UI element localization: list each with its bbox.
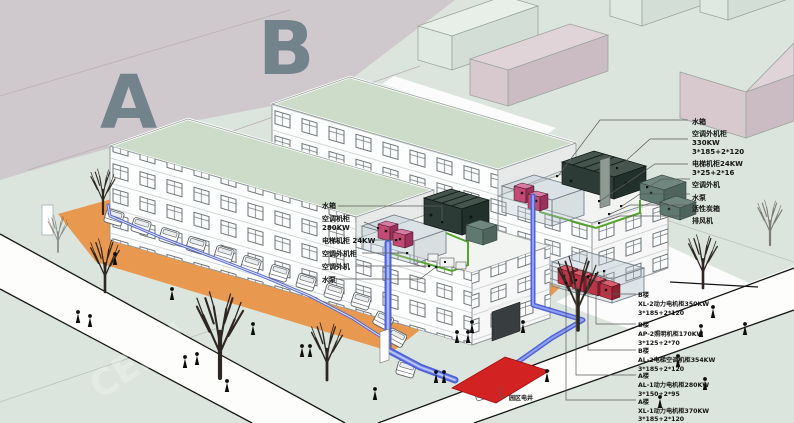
- label-exhaust-fan-b: 排风机: [692, 216, 713, 225]
- cabinet-4-building: A楼: [638, 398, 650, 406]
- entrance-pylon: [42, 205, 53, 235]
- cabinet-1-name: AP-2照明机柜170KW: [638, 330, 704, 338]
- label-ac-outdoor-cabinet-b-power: 330KW: [692, 139, 720, 147]
- label-water-pump-a: 水泵: [322, 275, 336, 284]
- cabinet-2-spec: 3*185+2*120: [638, 366, 685, 373]
- label-ac-outdoor-cabinet-b-spec: 3*185+2*120: [692, 148, 744, 156]
- site-svg: CEIDI: [0, 0, 794, 423]
- label-utility-well: 园区电井: [509, 394, 533, 402]
- building-a-letter: A: [100, 60, 157, 146]
- cabinet-1-spec: 3*125+2*70: [638, 340, 680, 347]
- label-water-pump-b: 水泵: [692, 193, 706, 202]
- cabinet-1-building: B楼: [638, 321, 650, 329]
- label-ac-cabinet-a: 空调机柜: [322, 214, 350, 223]
- gate-panel: [380, 329, 389, 363]
- cabinet-3-building: A楼: [638, 372, 650, 380]
- label-water-tank-a: 水箱: [322, 201, 336, 210]
- cabinet-2-name: AL-2电梯空调机柜354KW: [638, 356, 715, 364]
- label-carbon-box-b: 活性炭箱: [692, 204, 720, 213]
- cabinet-3-spec: 3*150+2*95: [638, 391, 680, 398]
- label-ac-outdoor-cabinet-b: 空调外机柜: [692, 129, 727, 138]
- label-elevator-cabinet-b-spec: 3*25+2*16: [692, 169, 735, 177]
- label-ac-outdoor-cabinet-a: 空调外机柜: [322, 249, 357, 258]
- cabinet-0-name: XL-2动力电机柜350KW: [638, 300, 709, 308]
- cabinet-2-building: B楼: [638, 347, 650, 355]
- label-ac-outdoor-unit-a: 空调外机: [322, 262, 350, 271]
- cabinet-4-name: XL-1动力电机柜370KW: [638, 407, 709, 415]
- cabinet-3-name: AL-1动力电机柜280KW: [638, 381, 709, 389]
- cabinet-0-spec: 3*185+2*120: [638, 310, 685, 317]
- label-ac-outdoor-unit-b: 空调外机: [692, 180, 720, 189]
- label-ac-cabinet-a-power: 280KW: [322, 224, 350, 232]
- building-b-letter: B: [258, 6, 314, 92]
- label-elevator-cabinet-a: 电梯机柜 24KW: [322, 236, 376, 245]
- cabinet-4-spec: 3*185+2*120: [638, 416, 685, 423]
- label-elevator-cabinet-b: 电梯机柜24KW: [692, 159, 743, 168]
- fan-unit-gray-a: [466, 220, 497, 245]
- cabinet-0-building: B楼: [638, 291, 650, 299]
- label-water-tank-b: 水箱: [692, 117, 706, 126]
- axonometric-site-diagram: CEIDI: [0, 0, 794, 423]
